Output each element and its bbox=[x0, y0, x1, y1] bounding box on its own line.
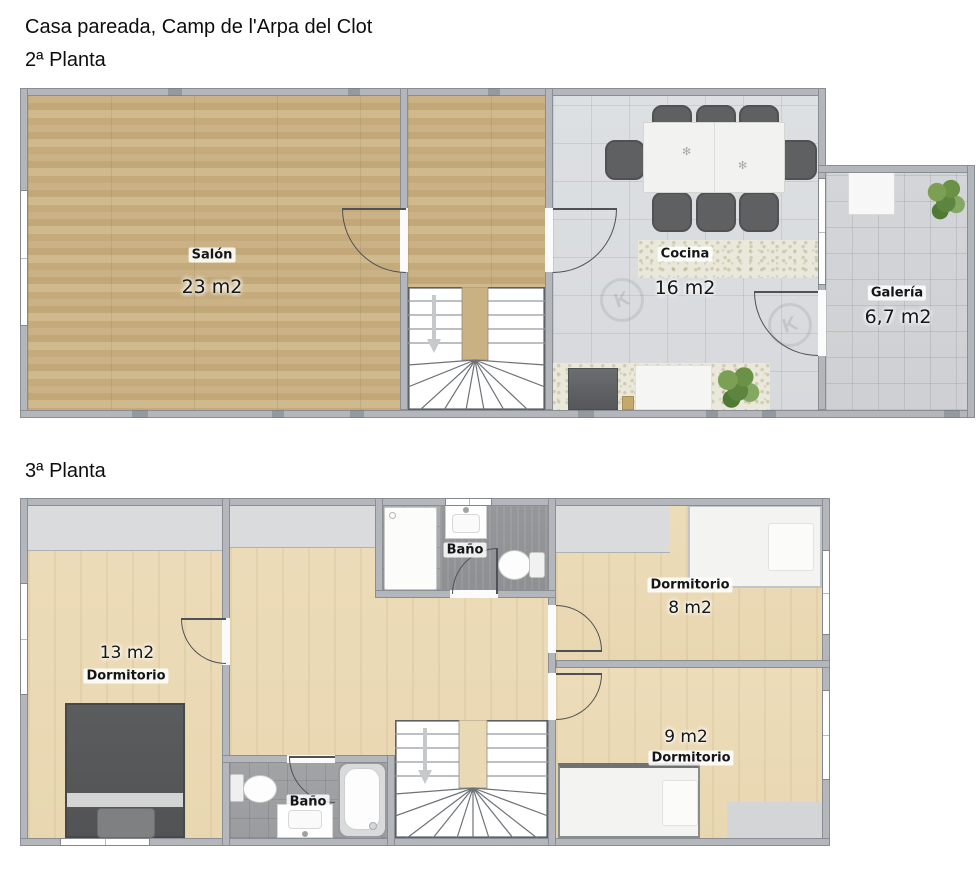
window bbox=[60, 838, 150, 846]
wall bbox=[387, 755, 395, 846]
room-area-dormitorio8: 8 m2 bbox=[668, 598, 712, 618]
room-area-cocina: 16 m2 bbox=[655, 277, 716, 299]
window bbox=[822, 690, 830, 780]
room-label-dormitorio8: Dormitorio bbox=[647, 578, 732, 593]
door-opening bbox=[545, 208, 553, 272]
floor3-label: 3ª Planta bbox=[25, 460, 106, 483]
window bbox=[822, 550, 830, 635]
window bbox=[20, 190, 28, 326]
bathtub-inner bbox=[344, 768, 380, 830]
table-decor-icon: ✻ bbox=[738, 159, 747, 172]
pillow-icon bbox=[662, 780, 698, 826]
room-label-galeria: Galería bbox=[868, 286, 926, 301]
room-area-dormitorio13: 13 m2 bbox=[100, 643, 154, 663]
door-opening bbox=[818, 290, 826, 356]
room-label-dormitorio9: Dormitorio bbox=[648, 751, 733, 766]
chair-icon bbox=[739, 192, 779, 232]
double-bed-icon bbox=[65, 703, 185, 838]
floorplan-floor3: 13 m2 Dormitorio Baño Dormitorio 8 m2 9 … bbox=[20, 498, 830, 846]
sink-counter-icon bbox=[635, 365, 712, 410]
floor2-label: 2ª Planta bbox=[25, 49, 106, 72]
room-label-dormitorio13: Dormitorio bbox=[83, 669, 168, 684]
table-decor-icon: ✻ bbox=[682, 145, 691, 158]
shower-icon bbox=[384, 507, 437, 590]
chair-icon bbox=[696, 192, 736, 232]
room-label-cocina: Cocina bbox=[658, 247, 713, 262]
bathtub-drain-icon bbox=[369, 822, 377, 830]
wall-joint bbox=[488, 88, 500, 96]
wall-joint bbox=[132, 410, 148, 418]
floorplan-page: Casa pareada, Camp de l'Arpa del Clot 2ª… bbox=[0, 0, 979, 881]
wall bbox=[222, 498, 230, 846]
sink-icon bbox=[445, 505, 487, 539]
plant-icon bbox=[714, 364, 760, 410]
wall-joint bbox=[578, 410, 594, 418]
logo-watermark-icon: K bbox=[600, 278, 644, 322]
wall-joint bbox=[944, 410, 960, 418]
wardrobe-band bbox=[28, 506, 222, 551]
bed-bench-icon bbox=[97, 808, 155, 838]
window bbox=[20, 583, 28, 695]
wall bbox=[967, 165, 975, 418]
wall bbox=[20, 410, 975, 418]
chair-icon bbox=[605, 140, 645, 180]
room-area-salon: 23 m2 bbox=[182, 276, 243, 298]
wall bbox=[548, 498, 556, 846]
small-kitchen-item-icon bbox=[622, 396, 634, 410]
wall-joint bbox=[350, 410, 364, 418]
room-label-bano-top: Baño bbox=[444, 543, 487, 558]
room-label-bano-bottom: Baño bbox=[287, 795, 330, 810]
wall-joint bbox=[706, 410, 718, 418]
window bbox=[445, 498, 492, 506]
wall bbox=[556, 660, 830, 668]
faucet-icon bbox=[302, 831, 308, 837]
dining-table-icon: ✻ ✻ bbox=[643, 122, 785, 193]
page-title: Casa pareada, Camp de l'Arpa del Clot bbox=[25, 16, 372, 39]
room-area-galeria: 6,7 m2 bbox=[865, 306, 932, 328]
wall bbox=[20, 498, 830, 506]
wall-joint bbox=[168, 88, 182, 96]
shower-drain-icon bbox=[389, 512, 396, 519]
wall bbox=[375, 498, 383, 598]
wardrobe-band bbox=[556, 506, 670, 553]
wall-joint bbox=[762, 410, 776, 418]
door-opening bbox=[548, 605, 556, 653]
staircase-icon bbox=[408, 287, 545, 410]
toilet-tank bbox=[230, 774, 244, 802]
pillow-icon bbox=[768, 523, 814, 571]
bed-sheet-band bbox=[67, 793, 183, 807]
bathtub-icon bbox=[338, 762, 387, 838]
plant-icon bbox=[925, 176, 965, 222]
floorplan-floor2: ✻ ✻ K K bbox=[20, 88, 975, 418]
wall bbox=[818, 165, 975, 173]
wall-joint bbox=[272, 410, 284, 418]
faucet-icon bbox=[463, 507, 469, 513]
staircase-icon bbox=[395, 720, 548, 838]
wardrobe-band bbox=[230, 506, 375, 548]
washer-icon bbox=[848, 172, 895, 215]
toilet-icon bbox=[498, 550, 531, 580]
toilet-tank bbox=[529, 552, 545, 578]
room-area-dormitorio9: 9 m2 bbox=[664, 727, 708, 747]
single-bed-icon bbox=[688, 505, 822, 588]
toilet-icon bbox=[243, 775, 277, 803]
sink-basin bbox=[288, 810, 322, 829]
closet-area bbox=[727, 802, 822, 838]
oven-icon bbox=[568, 368, 618, 410]
single-bed-icon bbox=[558, 763, 700, 838]
door-opening bbox=[548, 673, 556, 720]
chair-icon bbox=[652, 192, 692, 232]
room-label-salon: Salón bbox=[189, 248, 236, 263]
window bbox=[818, 178, 826, 285]
sink-basin bbox=[452, 514, 480, 533]
wall-joint bbox=[348, 88, 360, 96]
wall bbox=[20, 88, 826, 96]
